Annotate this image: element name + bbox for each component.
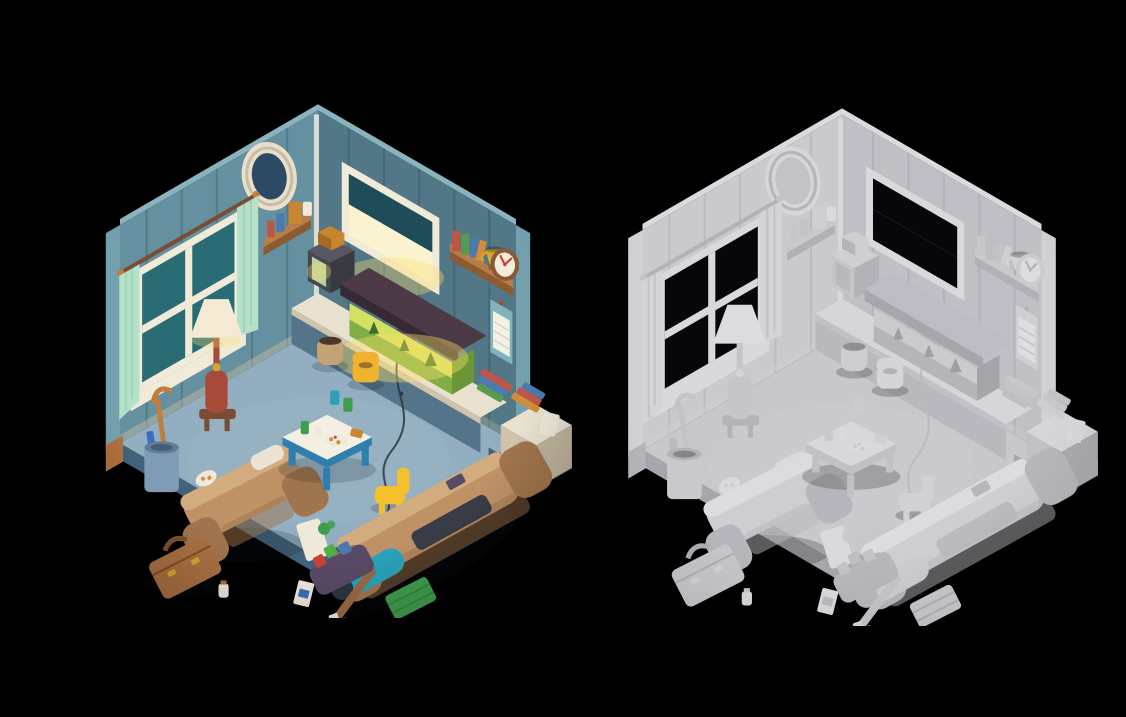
clay-room-instance (586, 94, 1098, 626)
render-comparison-stage (0, 0, 1126, 717)
clay-render-panel (586, 94, 1098, 626)
textured-render-panel (64, 90, 572, 618)
textured-room-instance (64, 90, 572, 618)
